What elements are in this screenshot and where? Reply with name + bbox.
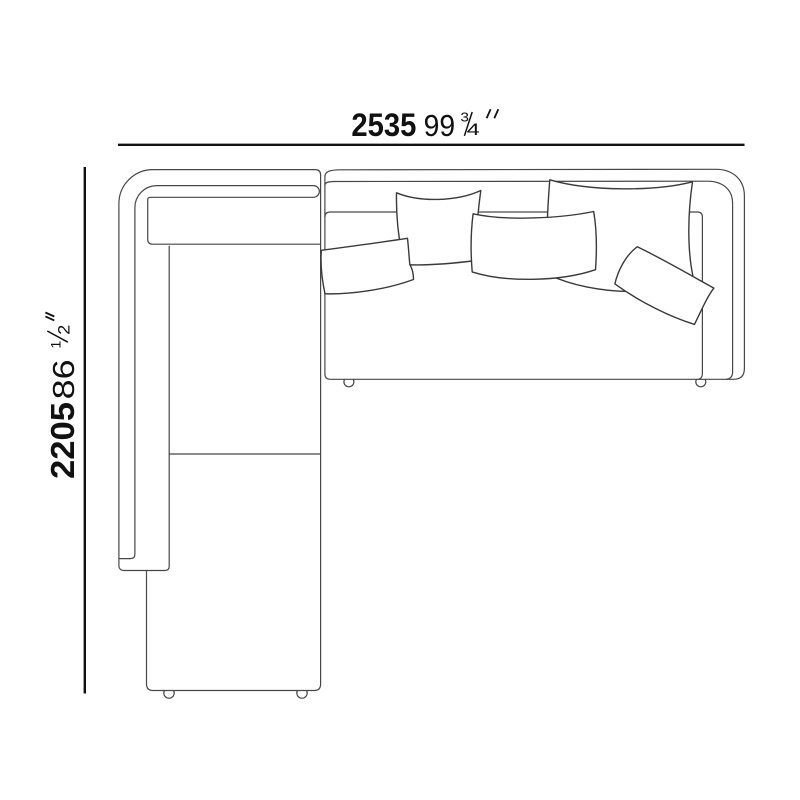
svg-text:99: 99 [424,108,456,143]
svg-text:4: 4 [467,120,480,139]
svg-text:86: 86 [46,359,81,399]
svg-text:1: 1 [48,340,64,348]
svg-text:2: 2 [54,325,73,335]
svg-text:2535: 2535 [351,107,416,143]
svg-text:2205: 2205 [44,402,81,479]
